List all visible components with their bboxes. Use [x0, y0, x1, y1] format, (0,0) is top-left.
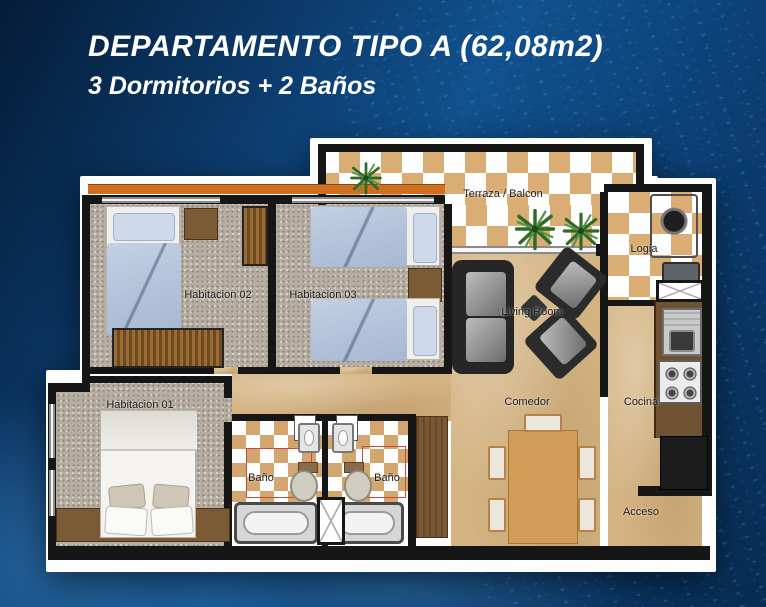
bed-duvet	[311, 299, 407, 361]
armchair-cushion	[539, 316, 588, 366]
fridge	[660, 436, 708, 490]
logia-label: Logia	[604, 243, 684, 255]
window-post-left	[444, 244, 452, 256]
sink-basin	[338, 430, 348, 446]
kitchen-sink	[662, 308, 702, 356]
habitacion02-window	[102, 197, 220, 203]
left-exterior-wall-upper	[82, 195, 90, 385]
planter-strip	[88, 184, 445, 194]
double-bed	[100, 410, 196, 538]
bathtub-basin	[243, 511, 309, 535]
floor-plan: Terraza / Balcon Logia Habitacion 02 Hab…	[0, 0, 766, 607]
single-bed	[310, 298, 440, 360]
habitacion01-window-1	[49, 404, 55, 458]
toilet-bowl	[290, 470, 318, 502]
chair	[578, 498, 596, 532]
chair	[578, 446, 596, 480]
hab01-door-gap	[224, 398, 232, 422]
chair	[524, 414, 562, 432]
duct-shaft-bathrooms	[317, 497, 345, 545]
bathtub	[234, 502, 318, 544]
kitchen-sink-basin	[669, 330, 695, 352]
acceso-label: Acceso	[596, 506, 686, 518]
logia-top-wall	[604, 184, 710, 192]
wardrobe	[112, 328, 224, 368]
cocina-label: Cocina	[601, 396, 681, 408]
habitacion03-window	[292, 197, 434, 203]
terraza-top-wall	[318, 144, 644, 152]
bano1-label: Baño	[236, 472, 286, 484]
habitacion01-label: Habitacion 01	[85, 399, 195, 411]
bed-pillow	[413, 213, 437, 263]
bathroom-sink	[332, 423, 354, 453]
living-label: Living Room	[477, 306, 587, 318]
bathtub-basin	[339, 511, 395, 535]
plant-icon	[560, 210, 602, 252]
plant-icon	[348, 160, 384, 196]
duct-shaft-kitchen	[656, 280, 704, 302]
hall-cabinet	[416, 416, 448, 538]
hab03-door-gap	[340, 367, 372, 374]
bed-fold	[101, 411, 197, 451]
nightstand	[408, 268, 442, 302]
hab03-living-divider	[444, 204, 452, 374]
terraza-label: Terraza / Balcon	[428, 188, 578, 200]
hab02-bottom-wall	[88, 367, 270, 374]
hab02-door-gap	[214, 367, 238, 374]
bathroom-sink	[298, 423, 320, 453]
floor-plan-poster: DEPARTAMENTO TIPO A (62,08m2) 3 Dormitor…	[0, 0, 766, 607]
desk	[184, 208, 218, 240]
closet	[242, 206, 268, 266]
habitacion01-window-2	[49, 470, 55, 516]
sofa-cushion	[466, 318, 506, 362]
bed-pillow	[104, 506, 148, 537]
hab01-top-wall	[88, 376, 230, 383]
bottom-exterior-wall	[48, 546, 710, 560]
bano2-label: Baño	[362, 472, 412, 484]
habitacion03-label: Habitacion 03	[268, 289, 378, 301]
bed-duvet	[311, 207, 407, 267]
logia-bottom-wall	[608, 300, 658, 306]
comedor-label: Comedor	[477, 396, 577, 408]
habitacion02-label: Habitacion 02	[163, 289, 273, 301]
single-bed	[106, 206, 180, 334]
chair	[488, 446, 506, 480]
single-bed	[310, 206, 440, 266]
toilet	[288, 462, 318, 500]
bed-pillow	[113, 213, 175, 241]
bed-pillow	[150, 506, 194, 537]
plant-icon	[512, 206, 558, 252]
chair	[488, 498, 506, 532]
bed-pillow	[413, 306, 437, 356]
sink-basin	[304, 430, 314, 446]
dining-table	[508, 430, 578, 544]
